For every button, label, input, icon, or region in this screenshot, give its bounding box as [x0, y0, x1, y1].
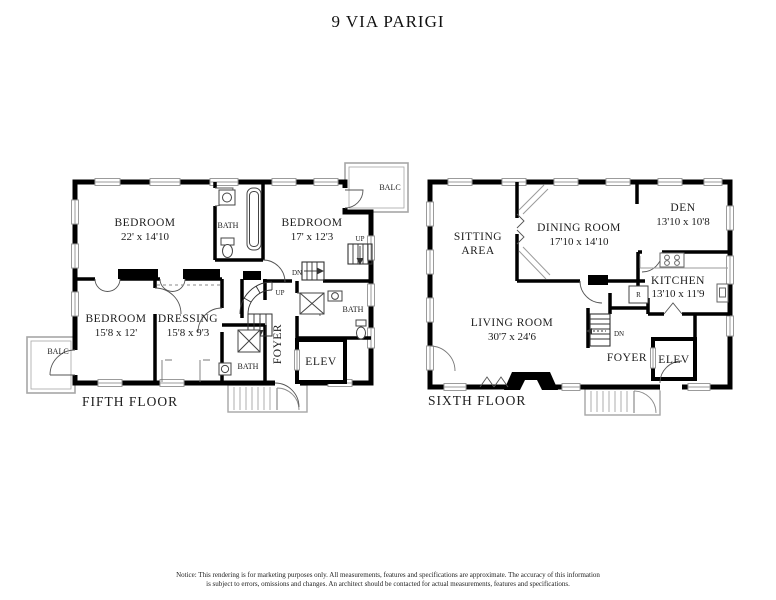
bath-right-label: BATH [343, 305, 364, 314]
exterior-stair [228, 385, 307, 412]
wall-jog [588, 275, 608, 285]
sink-right-bath [328, 291, 342, 301]
den-dims: 13'10 x 10'8 [656, 216, 710, 228]
living-room-dims: 30'7 x 24'6 [488, 331, 536, 343]
floorplan-page: 9 VIA PARIGI [0, 0, 776, 600]
foyer-label: FOYER [607, 352, 647, 364]
bathtub [247, 188, 261, 250]
disclaimer-notice: Notice: This rendering is for marketing … [0, 571, 776, 588]
den-label: DEN [670, 202, 695, 214]
shower-lower-bath [238, 330, 260, 352]
kitchen-dims: 13'10 x 11'9 [651, 288, 705, 300]
sixth-floor-plan: SITTING AREA DINING ROOM 17'10 x 14'10 D… [420, 148, 776, 428]
foyer-label: FOYER [272, 324, 284, 364]
living-room-label: LIVING ROOM [471, 317, 553, 329]
elev-label: ELEV [305, 356, 337, 368]
stove [660, 253, 684, 267]
elev-label: ELEV [658, 354, 690, 366]
elevator-door [295, 350, 300, 370]
dressing-label: DRESSING [158, 313, 218, 325]
sixth-floor-caption: SIXTH FLOOR [428, 393, 526, 408]
property-title: 9 VIA PARIGI [0, 12, 776, 32]
bedroom3-label: BEDROOM [85, 313, 146, 325]
balc-top-label: BALC [379, 183, 400, 192]
sitting-area-label1: SITTING [454, 231, 502, 243]
exterior-stair [585, 389, 660, 415]
balc-bottom-label: BALC [47, 347, 68, 356]
bedroom2-label: BEDROOM [281, 217, 342, 229]
bedroom3-dims: 15'8 x 12' [95, 327, 137, 339]
bath-lower-label: BATH [238, 362, 259, 371]
kitchen-label: KITCHEN [651, 275, 705, 287]
fifth-floor-plan: BEDROOM 22' x 14'10 BATH BEDROOM 17' x 1… [10, 148, 415, 428]
kitchen-sink [717, 284, 728, 302]
bedroom2-dims: 17' x 12'3 [291, 231, 334, 243]
bedroom1-dims: 22' x 14'10 [121, 231, 169, 243]
dressing-dims: 15'8 x 9'3 [167, 327, 210, 339]
disclaimer-line2: is subject to errors, omissions and chan… [0, 580, 776, 589]
up-foyer-label: UP [276, 289, 285, 297]
elevator-door [651, 348, 656, 368]
fifth-floor-caption: FIFTH FLOOR [82, 394, 178, 409]
fireplace [504, 372, 558, 390]
dn-label: DN [292, 269, 302, 277]
sitting-area-label2: AREA [461, 245, 495, 257]
sink-lower-bath [219, 363, 231, 375]
dining-room-dims: 17'10 x 14'10 [550, 236, 609, 248]
toilet-upper-bath [221, 238, 234, 258]
up-top-label: UP [356, 235, 365, 243]
disclaimer-line1: Notice: This rendering is for marketing … [0, 571, 776, 580]
sink-upper-bath [219, 190, 235, 205]
toilet-right-bath [356, 320, 366, 339]
bedroom1-label: BEDROOM [114, 217, 175, 229]
dn-label: DN [614, 330, 624, 338]
balcony-bottom-left [27, 337, 75, 393]
refrigerator-label: R [636, 291, 641, 299]
shower-right-bath [300, 293, 324, 314]
bath-upper-label: BATH [218, 221, 239, 230]
dining-room-label: DINING ROOM [537, 222, 621, 234]
